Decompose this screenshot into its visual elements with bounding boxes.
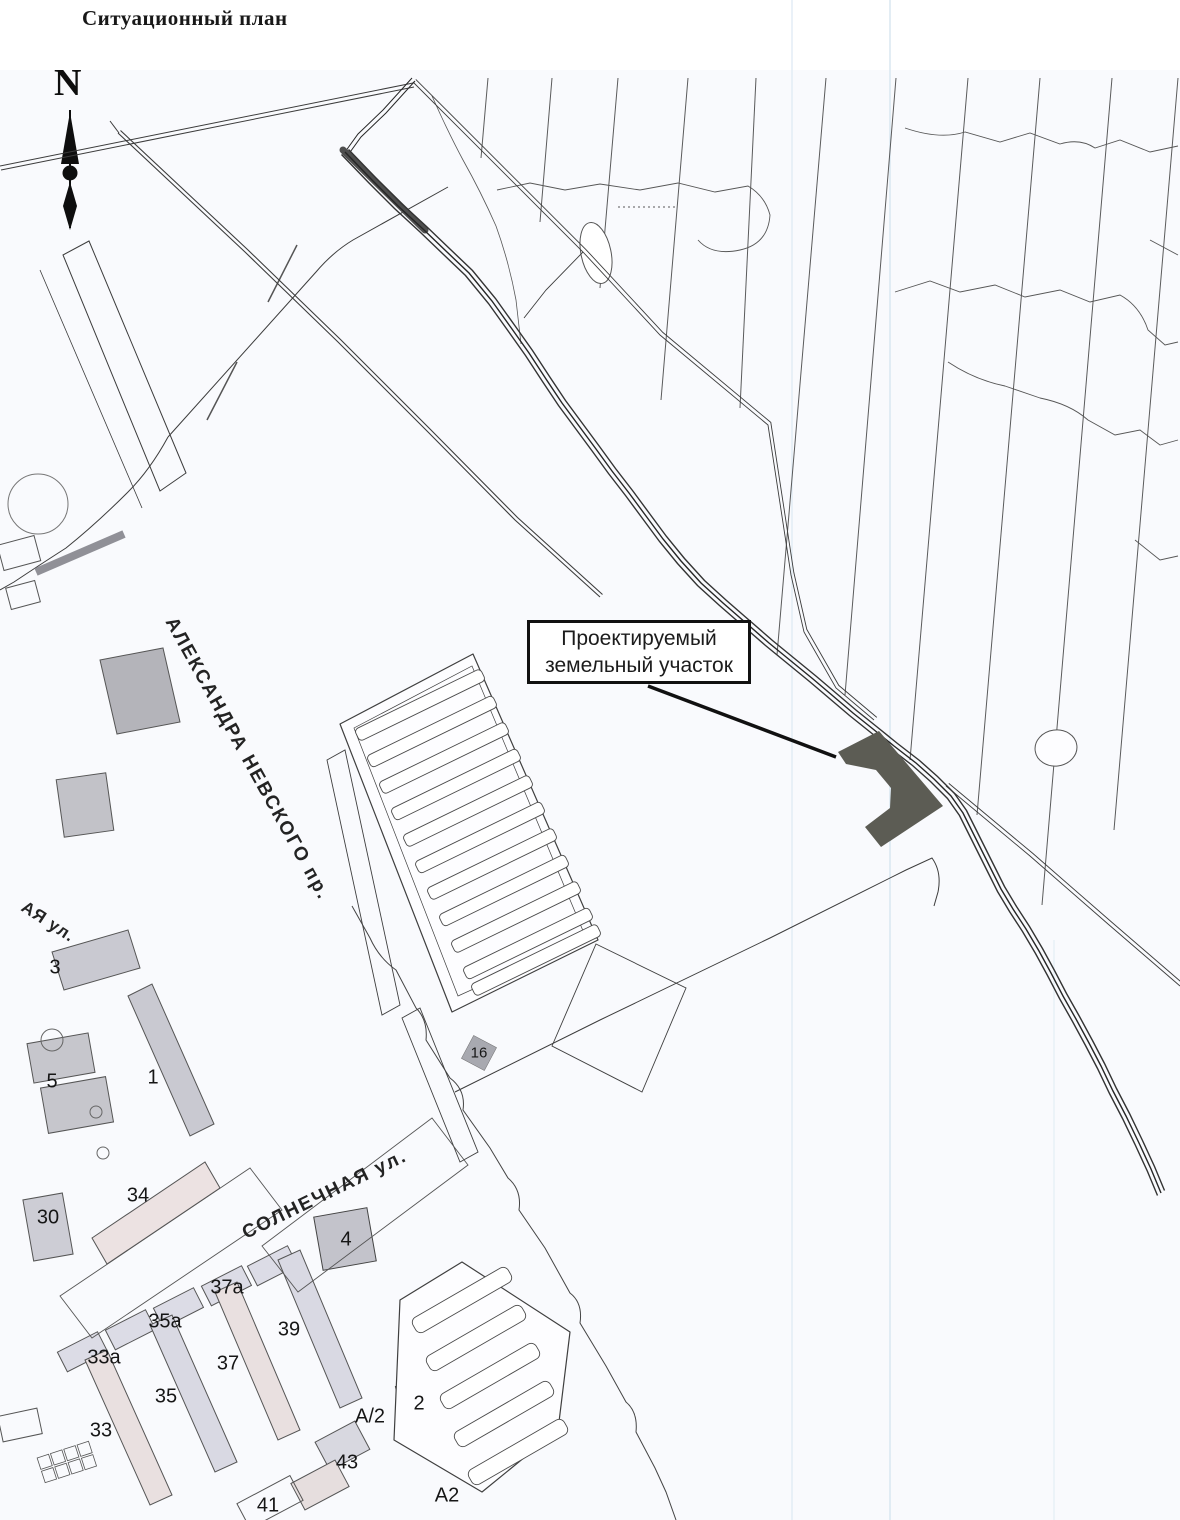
callout-line2: земельный участок bbox=[545, 652, 733, 679]
north-label: N bbox=[54, 64, 81, 102]
page-title: Ситуационный план bbox=[82, 6, 288, 31]
callout-line1: Проектируемый bbox=[561, 625, 717, 652]
situational-plan-page: Ситуационный план N АЛЕКСАНДРА НЕВСКОГО … bbox=[0, 0, 1180, 1520]
projected-plot-callout: Проектируемый земельный участок bbox=[527, 620, 751, 684]
map-canvas bbox=[0, 0, 1180, 1520]
